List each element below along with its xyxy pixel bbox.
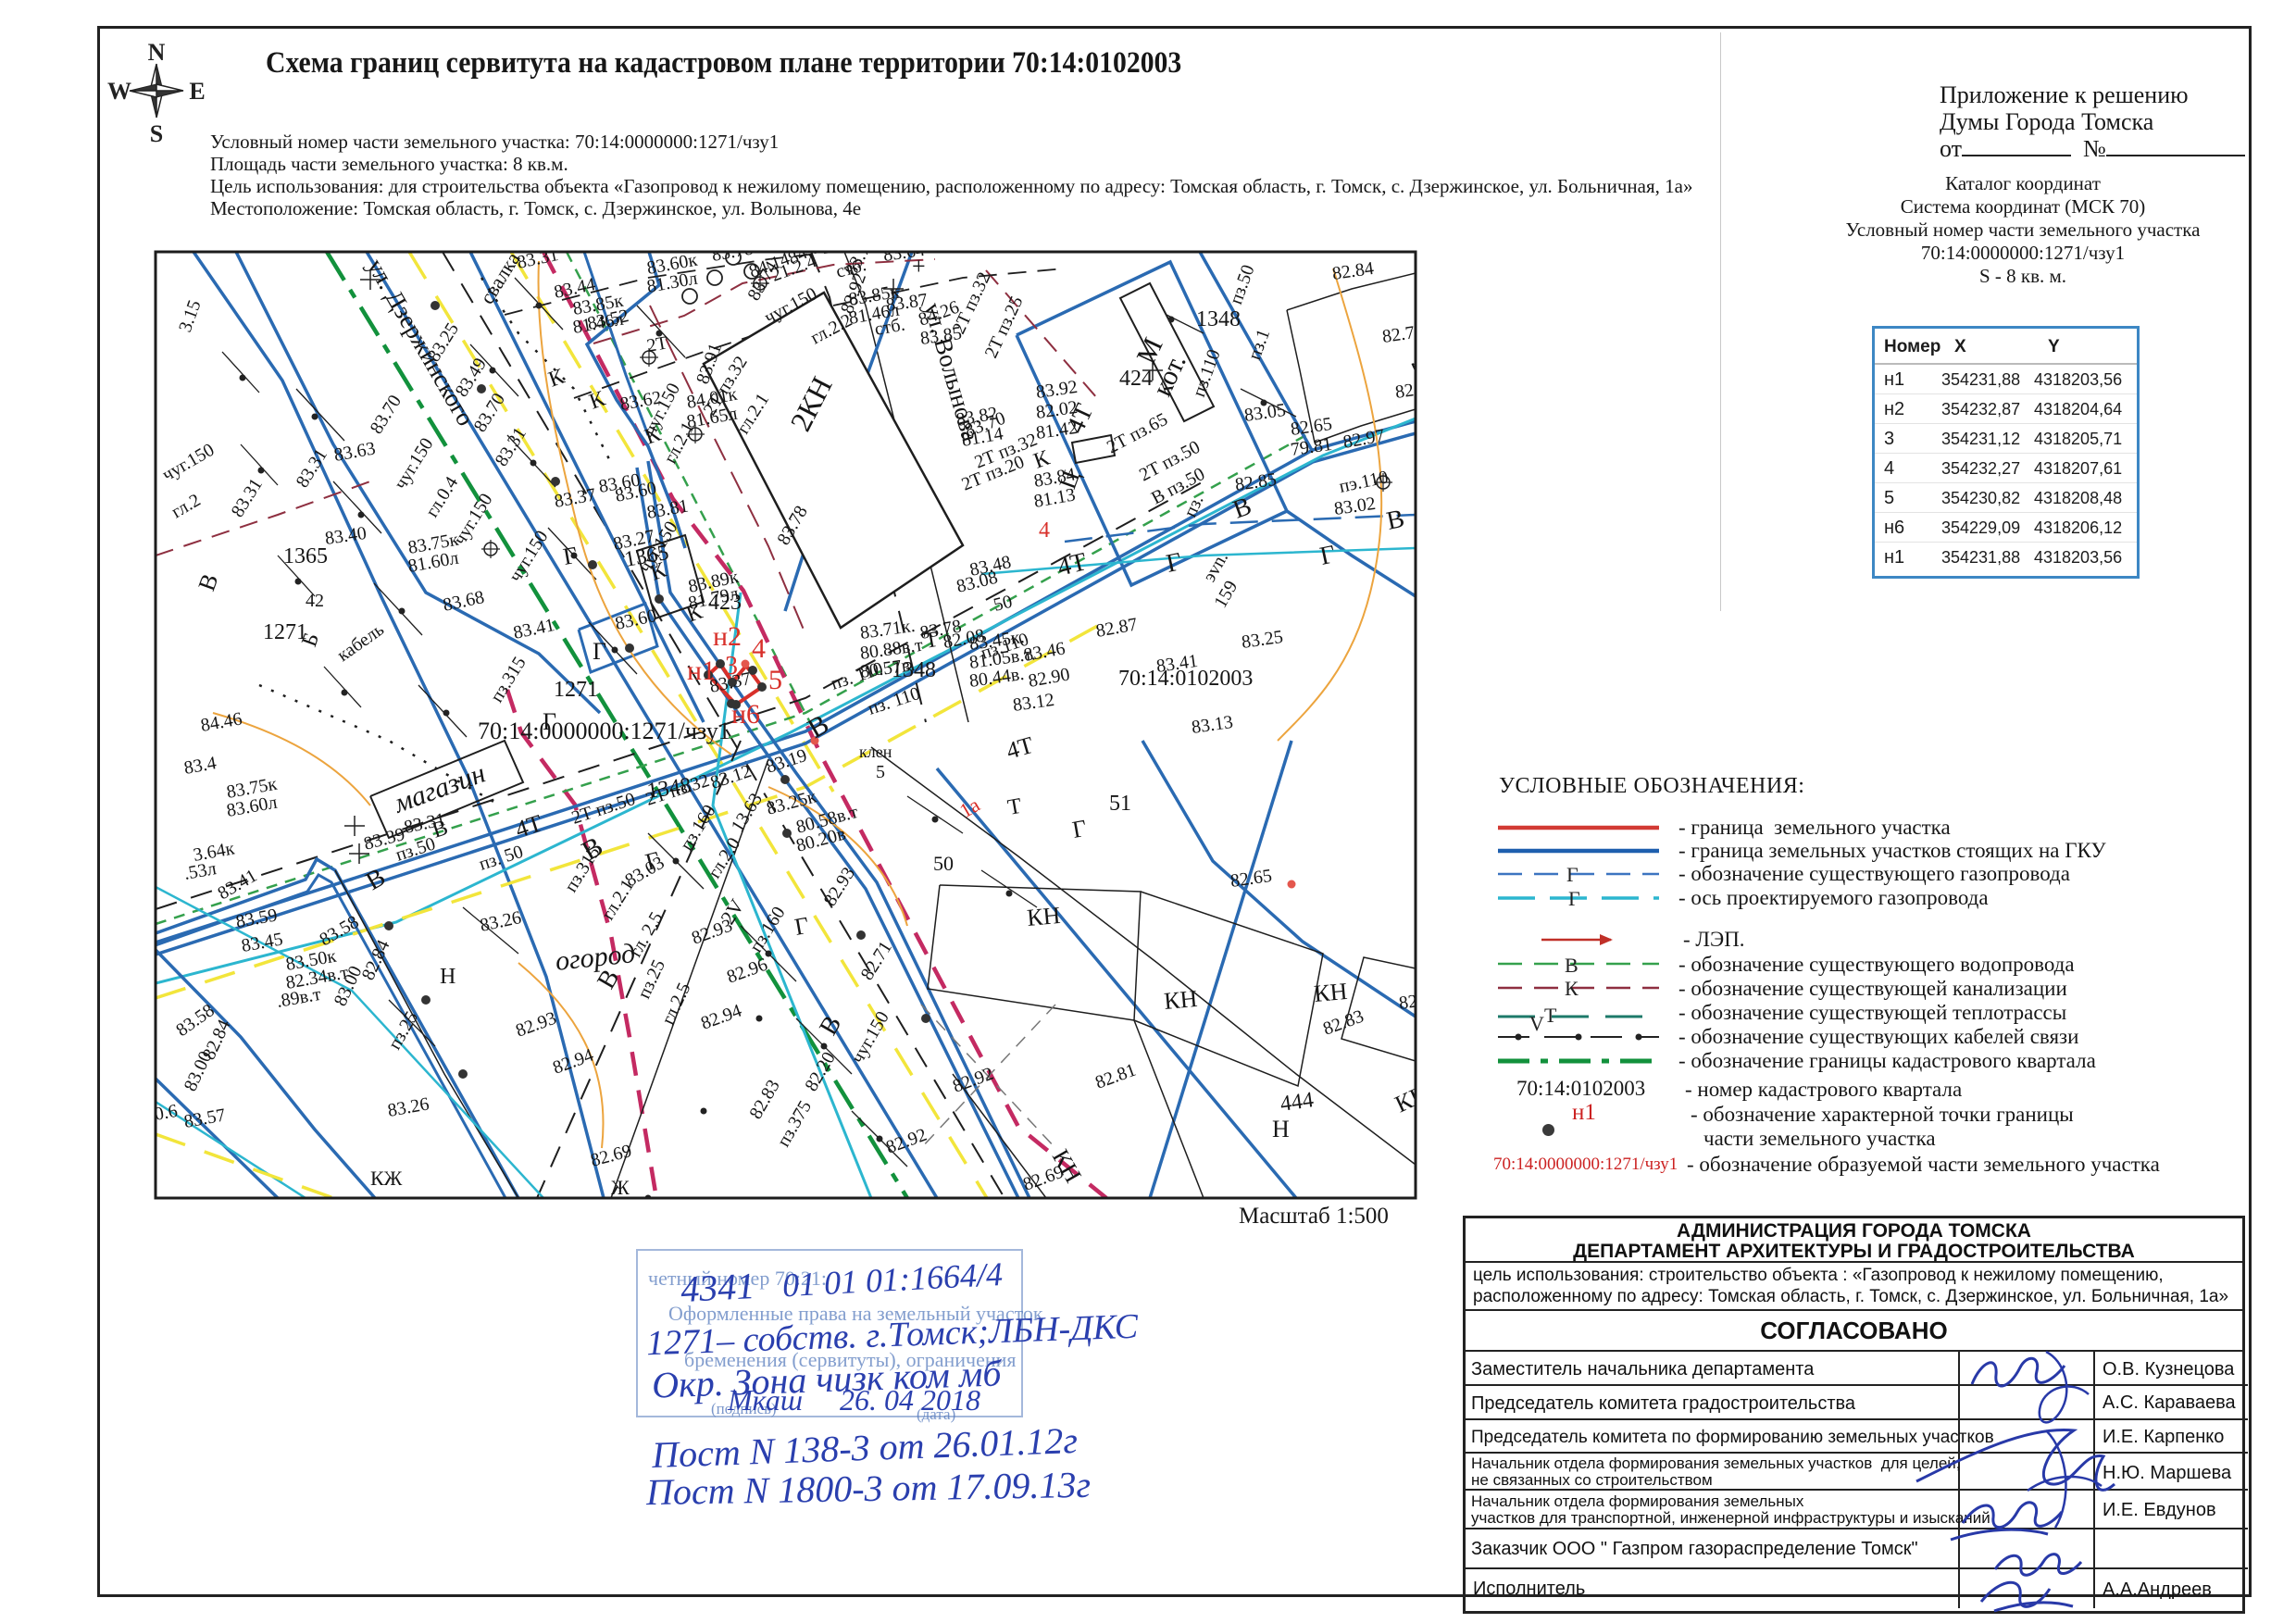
svg-text:4: 4 [752,633,766,664]
svg-text:82.8: 82.8 [1394,378,1429,403]
svg-text:83.81: 83.81 [645,495,690,522]
svg-text:Г: Г [1164,547,1184,579]
svg-text:гл. 2.5: гл. 2.5 [625,908,667,960]
svg-text:42: 42 [306,591,324,611]
svg-text:82.94: 82.94 [698,1001,744,1034]
svg-text:83.13: 83.13 [1191,712,1235,738]
svg-text:82.93: 82.93 [513,1008,559,1042]
svg-text:.89в.т: .89в.т [275,984,323,1012]
svg-text:Г: Г [792,912,811,941]
svg-text:Н: Н [1272,1116,1290,1142]
svg-text:82.83: 82.83 [1320,1006,1366,1040]
svg-text:83.58: 83.58 [317,912,363,951]
svg-text:чуг.150: чуг.150 [391,434,438,493]
svg-text:В: В [814,1011,847,1041]
svg-text:83.12: 83.12 [1012,690,1056,716]
svg-text:83.12: 83.12 [708,761,755,793]
svg-text:82.: 82. [1398,991,1424,1014]
svg-text:Г: Г [543,708,556,735]
svg-text:83.59: 83.59 [234,905,279,931]
svg-text:КН: КН [1313,978,1349,1007]
svg-text:В: В [193,570,223,594]
svg-text:82.20: 82.20 [801,1049,840,1095]
svg-text:83.02: 83.02 [1333,493,1378,519]
svg-text:Н: Н [440,965,455,989]
svg-text:Г: Г [561,542,580,570]
svg-text:Г: Г [593,638,606,665]
svg-text:клен: клен [859,743,892,761]
svg-text:пз.315: пз.315 [487,654,530,706]
svg-text:83.19: 83.19 [764,745,810,778]
svg-text:S: S [150,120,163,147]
svg-text:н2: н2 [713,621,742,652]
svg-text:Т: Т [1544,1004,1557,1027]
svg-text:4: 4 [1039,518,1050,543]
svg-text:В: В [803,708,834,744]
svg-text:чуг.150: чуг.150 [159,440,218,486]
svg-text:83.05: 83.05 [1243,400,1288,426]
svg-text:82.96: 82.96 [724,955,770,988]
svg-text:кабель: кабель [333,619,388,666]
svg-text:пз.375: пз.375 [773,1097,816,1150]
svg-text:E: E [189,78,205,105]
svg-text:гл.0.4: гл.0.4 [422,473,463,521]
svg-text:пз.25: пз.25 [634,956,669,1002]
svg-text:83.00: 83.00 [181,1048,217,1094]
svg-text:2Т пз.25: 2Т пз.25 [981,293,1028,361]
svg-text:50: 50 [933,852,954,875]
svg-text:83.57: 83.57 [182,1105,227,1131]
svg-text:83.4: 83.4 [182,753,218,779]
svg-text:1348: 1348 [1196,307,1241,331]
svg-text:82.70: 82.70 [1381,321,1426,347]
svg-text:КН: КН [1026,902,1062,931]
svg-text:83.31: 83.31 [492,424,531,470]
svg-text:гл.2: гл.2 [168,490,205,522]
svg-text:чуг.150: чуг.150 [450,490,497,548]
svg-text:В: В [1384,505,1407,536]
svg-text:70:14:0000000:1271/чзу1: 70:14:0000000:1271/чзу1 [478,718,730,744]
svg-text:82.83: 82.83 [745,1077,784,1123]
svg-text:гл.2.5: гл.2.5 [658,980,695,1028]
svg-text:83.25: 83.25 [1241,627,1285,653]
svg-text:+: + [912,253,926,280]
svg-text:83.08: 83.08 [955,568,1000,597]
svg-text:444: 444 [1279,1088,1315,1117]
svg-text:н6: н6 [731,699,760,730]
svg-text:Г: Г [1568,887,1580,910]
svg-text:82.69: 82.69 [589,1141,634,1171]
svg-text:82.97: 82.97 [1341,425,1386,452]
svg-text:2Т: 2Т [645,332,669,356]
svg-text:Г: Г [1566,863,1578,886]
svg-text:1365: 1365 [283,544,328,568]
svg-text:гл.2.0: гл.2.0 [705,834,745,882]
svg-text:82.69: 82.69 [1020,1162,1067,1195]
svg-text:84.46: 84.46 [199,708,243,735]
svg-text:Т: Т [1006,794,1024,820]
svg-text:83.37: 83.37 [553,484,597,511]
svg-text:82.94: 82.94 [550,1045,596,1079]
svg-text:КЖ: КЖ [370,1167,403,1190]
svg-text:.53л: .53л [182,858,218,884]
svg-text:КН: КН [1391,1080,1432,1118]
svg-text:5: 5 [876,762,885,782]
svg-text:огород: огород [554,938,636,977]
svg-text:83.31: 83.31 [293,445,332,492]
svg-text:W: W [107,78,131,105]
svg-text:83.26: 83.26 [386,1093,430,1120]
svg-text:82.84: 82.84 [1331,258,1376,284]
svg-text:4Т: 4Т [1004,731,1037,765]
svg-text:чуг.150: чуг.150 [847,1008,893,1067]
svg-text:1271: 1271 [554,678,598,702]
svg-text:КН: КН [1163,985,1199,1015]
svg-text:К: К [545,364,568,392]
svg-text:пз.50: пз.50 [1226,262,1259,307]
svg-text:82.92: 82.92 [883,1125,930,1158]
svg-text:В: В [1565,954,1578,977]
svg-text:82.81: 82.81 [1092,1060,1139,1093]
svg-text:50: 50 [992,592,1015,616]
svg-text:82.87: 82.87 [1094,614,1139,641]
svg-text:83.41: 83.41 [511,615,556,643]
svg-text:пз.1: пз.1 [1244,327,1274,363]
svg-text:82.85: 82.85 [1234,469,1279,495]
svg-text:Ж: Ж [611,1176,630,1199]
svg-text:V: V [1529,1012,1544,1035]
svg-text:82.65: 82.65 [1229,866,1274,892]
svg-text:83.68: 83.68 [441,587,486,616]
svg-text:51: 51 [1109,792,1131,816]
svg-text:83.63: 83.63 [332,438,377,465]
svg-text:стб.: стб. [873,315,906,340]
svg-text:К: К [1565,977,1578,1000]
svg-text:82.90: 82.90 [1027,664,1071,691]
svg-text:пз. 50: пз. 50 [477,842,526,875]
svg-text:пз.160: пз.160 [746,904,790,956]
svg-text:гл.2.1: гл.2.1 [598,876,639,924]
svg-text:3.15: 3.15 [175,297,206,334]
svg-text:83.31: 83.31 [228,475,268,521]
svg-text:83.40: 83.40 [324,523,368,549]
svg-text:К: К [586,386,609,414]
svg-text:83.70: 83.70 [367,392,406,438]
svg-text:N: N [148,39,166,66]
svg-text:83.26: 83.26 [478,907,523,936]
svg-text:5: 5 [768,665,782,695]
svg-text:Б: Б [297,630,324,650]
svg-text:пз.315: пз.315 [561,843,605,896]
svg-text:2Т пз.65: 2Т пз.65 [1104,409,1171,458]
svg-text:Г: Г [1070,815,1089,843]
